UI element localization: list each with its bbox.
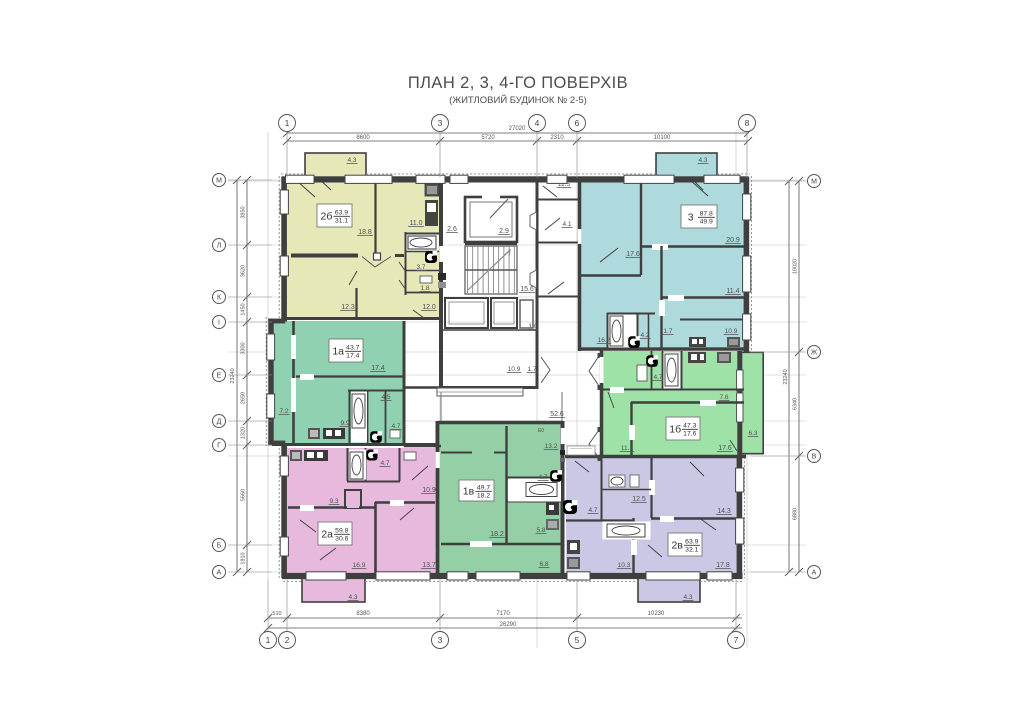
svg-text:4.7: 4.7 [380,460,389,467]
svg-text:10.9: 10.9 [725,328,738,335]
svg-text:3: 3 [438,635,443,645]
svg-text:12.0: 12.0 [422,304,436,311]
svg-text:23240: 23240 [783,369,789,384]
svg-text:11.1: 11.1 [621,445,634,452]
svg-text:4.3: 4.3 [698,157,707,164]
svg-text:59.8: 59.8 [335,527,348,534]
svg-text:26290: 26290 [500,622,517,628]
svg-text:32.1: 32.1 [685,546,698,553]
svg-text:2в: 2в [671,539,683,551]
svg-text:2б: 2б [321,210,333,222]
svg-text:10.9: 10.9 [508,366,521,373]
svg-text:3: 3 [688,211,694,223]
svg-text:16.8: 16.8 [598,337,611,344]
svg-text:2310: 2310 [550,135,564,141]
svg-text:М: М [811,179,817,186]
svg-text:63.9: 63.9 [335,209,348,216]
svg-text:17.4: 17.4 [346,352,359,359]
svg-text:1в: 1в [463,485,475,497]
svg-text:1.8: 1.8 [420,285,429,292]
svg-text:12.3: 12.3 [341,304,355,311]
svg-text:8380: 8380 [356,611,370,617]
svg-text:30.6: 30.6 [335,535,348,542]
svg-text:52.6: 52.6 [550,411,564,418]
svg-text:17.8: 17.8 [716,562,730,569]
svg-text:Л: Л [217,243,222,250]
svg-text:4.3: 4.3 [683,594,692,601]
svg-text:10.9: 10.9 [422,487,436,494]
svg-text:17.6: 17.6 [718,445,732,452]
svg-text:6: 6 [575,118,580,128]
svg-text:4.2: 4.2 [640,332,649,339]
svg-text:4.1: 4.1 [562,221,571,228]
svg-text:2.6: 2.6 [447,226,457,233]
svg-text:8600: 8600 [356,135,370,141]
svg-text:1б: 1б [669,423,681,435]
svg-text:1.7: 1.7 [527,366,536,373]
svg-text:ПЛАН 2, 3, 4-ГО ПОВЕРХІВ: ПЛАН 2, 3, 4-ГО ПОВЕРХІВ [408,74,628,92]
svg-text:1.7: 1.7 [663,328,672,335]
svg-text:4.7: 4.7 [653,374,662,381]
svg-text:63.9: 63.9 [685,538,698,545]
svg-text:3850: 3850 [241,206,247,218]
svg-text:9.9: 9.9 [340,420,349,427]
svg-text:6340: 6340 [793,398,799,410]
svg-text:18.8: 18.8 [358,229,372,236]
svg-text:А: А [217,570,222,577]
svg-text:1а: 1а [332,345,344,357]
svg-text:В: В [812,454,817,461]
svg-text:13.2: 13.2 [545,443,558,450]
svg-text:1450: 1450 [241,303,247,315]
svg-text:Е: Е [217,373,222,380]
svg-text:4.7: 4.7 [588,507,597,514]
svg-text:10020: 10020 [793,259,799,274]
svg-text:8: 8 [745,118,750,128]
svg-text:6.8: 6.8 [539,561,548,568]
svg-text:Б: Б [217,543,222,550]
svg-text:4.7: 4.7 [538,474,547,481]
svg-text:Е0: Е0 [538,428,544,434]
svg-text:16.9: 16.9 [353,562,366,569]
svg-text:17.4: 17.4 [371,365,385,372]
svg-text:5.8: 5.8 [536,527,545,534]
svg-text:1.0: 1.0 [528,323,537,330]
svg-text:7170: 7170 [496,611,510,617]
svg-text:10.3: 10.3 [618,562,631,569]
svg-text:31.1: 31.1 [335,217,348,224]
svg-text:1: 1 [266,635,271,645]
svg-text:5720: 5720 [481,135,495,141]
svg-text:3620: 3620 [241,265,247,277]
svg-text:7: 7 [734,635,739,645]
svg-text:49.7: 49.7 [477,484,490,491]
svg-text:4.3: 4.3 [348,594,357,601]
svg-text:27020: 27020 [509,126,526,132]
svg-text:Г: Г [217,443,221,450]
svg-text:10230: 10230 [648,611,665,617]
svg-text:2.9: 2.9 [499,228,509,235]
svg-text:15.6: 15.6 [520,286,534,293]
svg-text:5: 5 [575,635,580,645]
svg-text:43.7: 43.7 [346,344,359,351]
svg-text:4.3: 4.3 [347,157,356,164]
svg-text:4.7: 4.7 [391,423,400,430]
svg-text:87.8: 87.8 [700,210,713,217]
svg-text:14.3: 14.3 [717,508,731,515]
svg-text:17.6: 17.6 [683,430,696,437]
svg-text:23240: 23240 [230,368,236,383]
svg-text:2: 2 [285,635,290,645]
svg-text:18.2: 18.2 [490,531,504,538]
svg-text:17.6: 17.6 [626,251,640,258]
svg-text:11.4: 11.4 [726,288,739,295]
svg-text:47.3: 47.3 [683,422,696,429]
svg-text:11.0: 11.0 [409,220,422,227]
svg-text:5660: 5660 [241,489,247,501]
svg-text:І: І [218,320,220,327]
svg-text:10100: 10100 [654,135,671,141]
svg-text:7.2: 7.2 [279,408,288,415]
svg-text:1810: 1810 [241,552,247,564]
svg-text:18.2: 18.2 [477,492,490,499]
svg-text:3300: 3300 [241,342,247,354]
svg-text:510: 510 [272,611,281,617]
svg-text:Д: Д [217,419,222,426]
svg-text:2650: 2650 [241,392,247,404]
svg-text:20.9: 20.9 [726,237,740,244]
svg-text:1320: 1320 [241,427,247,439]
svg-text:3: 3 [438,118,443,128]
svg-text:4: 4 [535,118,540,128]
svg-text:М: М [216,178,222,185]
svg-text:12.5: 12.5 [632,496,646,503]
svg-text:9.3: 9.3 [329,498,338,505]
svg-text:Ж: Ж [811,350,818,357]
svg-text:13.7: 13.7 [422,562,436,569]
svg-text:6.3: 6.3 [748,430,757,437]
svg-text:3.7: 3.7 [416,264,425,271]
svg-text:А: А [812,570,817,577]
svg-text:(ЖИТЛОВИЙ БУДИНОК № 2-5): (ЖИТЛОВИЙ БУДИНОК № 2-5) [449,94,587,106]
svg-text:49.9: 49.9 [700,218,713,225]
svg-text:6880: 6880 [793,508,799,520]
svg-text:7.6: 7.6 [719,394,728,401]
svg-text:2а: 2а [321,528,333,540]
svg-text:1: 1 [285,118,290,128]
svg-text:4.5: 4.5 [381,394,390,401]
